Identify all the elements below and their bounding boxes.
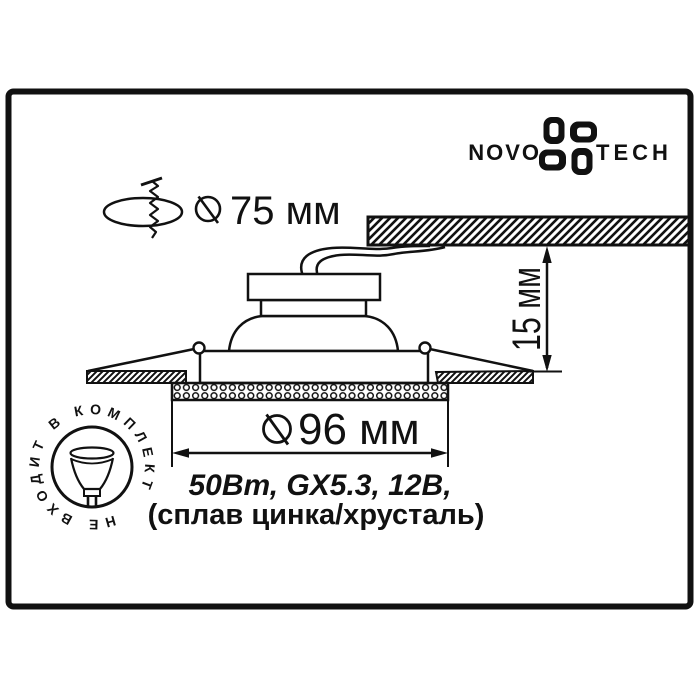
mounting-hole-icon [104, 178, 182, 238]
fixture-mounting-diagram: NOVO TECH 75 мм [0, 0, 700, 700]
trim-flange [200, 351, 428, 383]
screw-head-icon [141, 178, 162, 185]
ceiling-strip-right [436, 371, 533, 383]
novotech-logo: NOVO TECH [468, 117, 672, 175]
not-included-stamp: НЕ ВХОДИТ В КОМПЛЕКТ [26, 401, 158, 533]
screw-thread-icon [150, 181, 158, 238]
spec-line-1: 50Вт, GX5.3, 12В, [188, 469, 451, 502]
trim-assembly [87, 343, 533, 401]
cutout-diameter-label: 75 мм [230, 189, 341, 233]
housing-dome [229, 316, 398, 351]
diameter-symbol [264, 415, 291, 445]
arrow-right-icon [431, 448, 448, 457]
mr16-lamp-icon [71, 448, 114, 507]
brand-text-tech: TECH [596, 140, 672, 165]
crystal-band [172, 383, 448, 400]
diameter-symbol [196, 197, 220, 224]
spec-line-2: (сплав цинка/хрусталь) [148, 499, 485, 531]
arrow-up-icon [542, 246, 551, 263]
housing-neck [261, 300, 366, 316]
stamp-text: НЕ ВХОДИТ В КОМПЛЕКТ [26, 401, 158, 533]
diameter-label: 96 мм [298, 405, 420, 454]
ceiling-strip-left [87, 371, 186, 383]
lamp-housing [229, 274, 398, 351]
depth-label: 15 мм [505, 267, 549, 351]
arrow-down-icon [542, 355, 551, 372]
pivot-left [194, 343, 205, 354]
cutout-diameter-dimension: 75 мм [196, 189, 341, 233]
pivot-right [420, 343, 431, 354]
wire [301, 246, 445, 276]
ceiling-section [368, 217, 689, 245]
terminal-box [248, 274, 380, 300]
brand-text-novo: NOVO [468, 140, 541, 165]
spring-clip-left [88, 348, 199, 371]
diameter-dimension: 96 мм [172, 400, 448, 467]
logo-flower-icon [539, 117, 597, 175]
depth-dimension: 15 мм [505, 246, 562, 372]
diagram-canvas: NOVO TECH 75 мм [0, 0, 700, 700]
arrow-left-icon [172, 448, 189, 457]
